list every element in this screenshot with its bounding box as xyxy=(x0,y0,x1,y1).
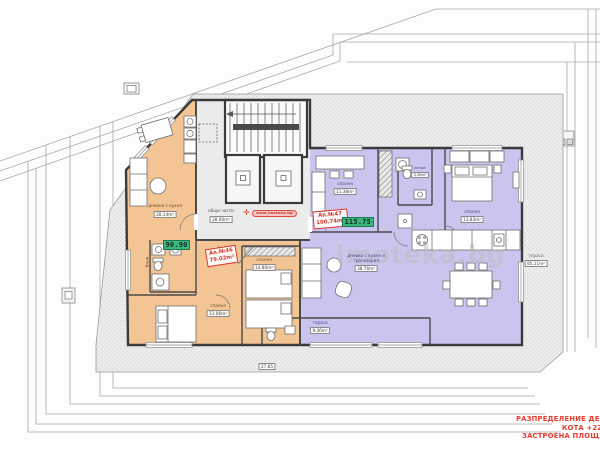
roof-terrace-label: тераса xyxy=(528,254,543,259)
room-label-living46: дневна с кухня xyxy=(148,204,182,209)
room-label-terrace47: тераса xyxy=(312,321,327,326)
room-area-bed2-46: 14.80m² xyxy=(253,264,276,271)
apartment47-total-badge: 115.75 xyxy=(342,217,374,227)
room-label-bed1-47: спалня xyxy=(337,182,353,187)
room-area-bed1-46: 11.06m² xyxy=(207,310,230,317)
roof-terrace-area: 85.11m² xyxy=(525,260,548,267)
room-label-bed2-47: спалня xyxy=(464,210,480,215)
title-line3: ЗАСТРОЕНА ПЛОЩ - xyxy=(516,432,600,441)
stamp-cross-icon: ✛ xyxy=(243,208,250,217)
apartment46-total-badge: 90.90 xyxy=(163,240,190,250)
bottom-dimension: 27.85 xyxy=(259,363,276,370)
common-area-label: общи части xyxy=(208,209,234,214)
room-label-bath46: баня xyxy=(146,257,151,267)
room-label-living47-line2: трапезария xyxy=(353,259,379,264)
room-area-bed2-47: 13.83m² xyxy=(461,216,484,223)
common-area-value: 28.06m² xyxy=(210,216,233,223)
room-area-bed1-47: 11.38m² xyxy=(334,188,357,195)
room-area-hall-47: 3.36m² xyxy=(411,172,429,178)
elevators xyxy=(226,155,302,203)
title-line2: КОТА +22. xyxy=(516,424,600,433)
room-area-living47: 38.76m² xyxy=(355,265,378,272)
room-area-living46: 28.14m² xyxy=(154,211,177,218)
agency-stamp: www.imoteka.bg xyxy=(252,210,297,217)
room-area-terrace47: 9.36m² xyxy=(310,327,330,334)
title-block: РАЗПРЕДЕЛЕНИЕ ДЕВ КОТА +22. ЗАСТРОЕНА ПЛ… xyxy=(516,415,600,441)
plan-linework xyxy=(0,0,600,450)
title-line1: РАЗПРЕДЕЛЕНИЕ ДЕВ xyxy=(516,415,600,424)
room-label-hall-47: антре xyxy=(414,167,425,171)
floor-plan-canvas: imoteka.bg общи части 28.06m² ✛ www.imot… xyxy=(0,0,600,450)
apartment47-area: 100.74m² xyxy=(316,217,345,226)
room-label-bed2-46: спалня xyxy=(256,258,272,263)
room-label-bed1-46: спалня xyxy=(210,304,226,309)
